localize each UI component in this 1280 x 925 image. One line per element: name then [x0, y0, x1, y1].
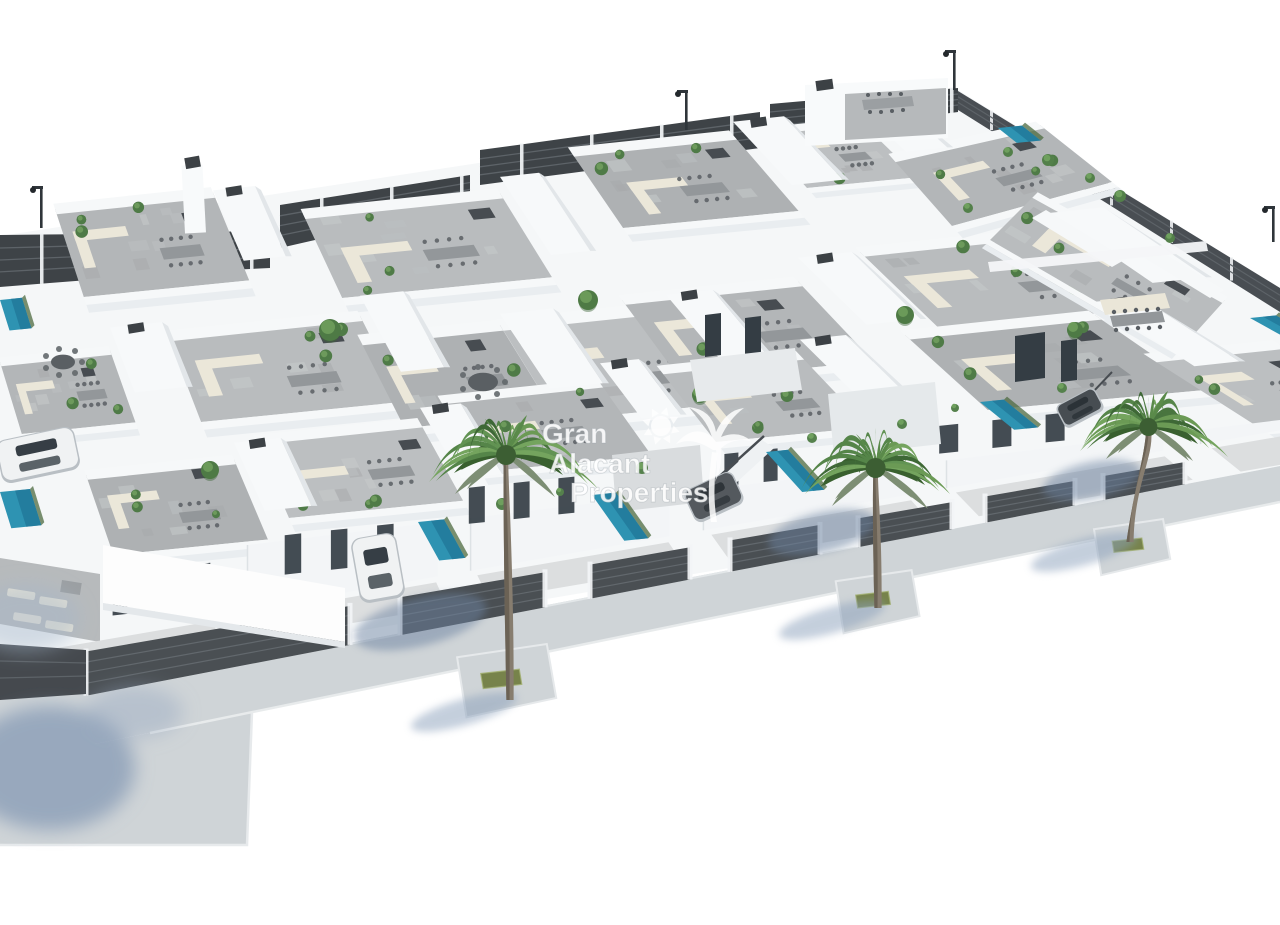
svg-text:Gran: Gran — [542, 418, 607, 449]
svg-text:Properties: Properties — [570, 477, 709, 508]
svg-text:Alacant: Alacant — [549, 448, 650, 479]
